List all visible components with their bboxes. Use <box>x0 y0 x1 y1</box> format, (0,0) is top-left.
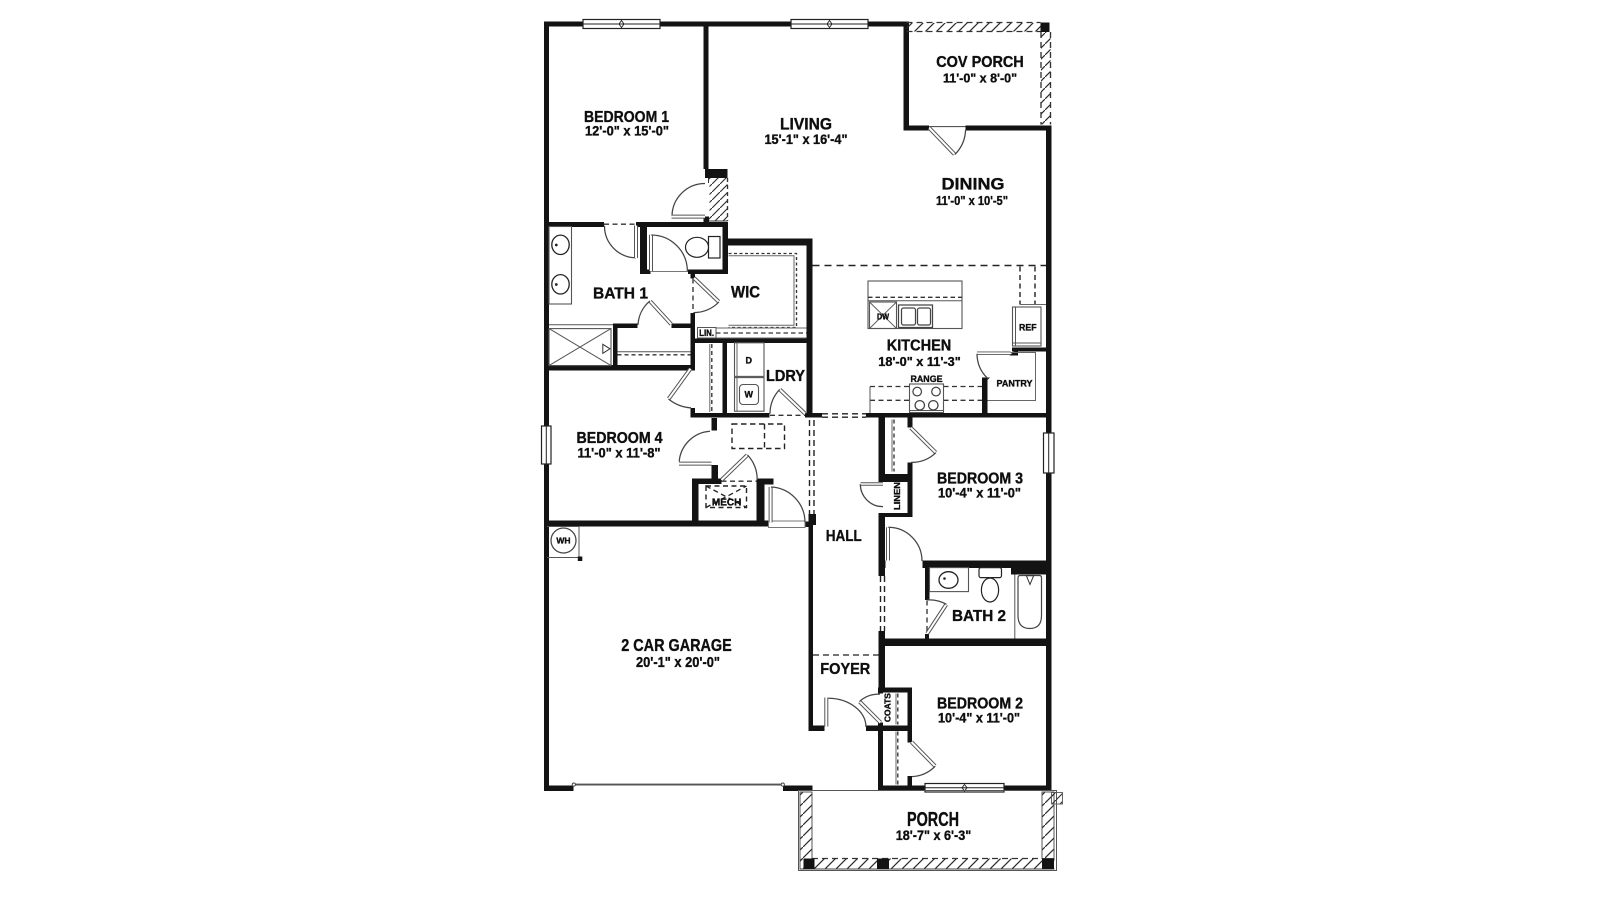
svg-text:BEDROOM 4: BEDROOM 4 <box>577 430 663 447</box>
svg-text:REF: REF <box>1019 323 1037 334</box>
svg-text:PANTRY: PANTRY <box>997 378 1034 389</box>
svg-text:D: D <box>746 355 753 365</box>
svg-text:10'-4" x 11'-0": 10'-4" x 11'-0" <box>938 485 1021 500</box>
svg-text:11'-0" x 10'-5": 11'-0" x 10'-5" <box>936 193 1008 208</box>
svg-text:LINEN: LINEN <box>892 482 902 510</box>
svg-text:LIN.: LIN. <box>699 328 714 338</box>
svg-text:HALL: HALL <box>826 528 862 545</box>
svg-text:WIC: WIC <box>731 284 760 302</box>
svg-text:BATH 1: BATH 1 <box>593 286 648 303</box>
svg-text:20'-1" x 20'-0": 20'-1" x 20'-0" <box>636 655 720 671</box>
svg-text:W: W <box>745 390 754 400</box>
svg-text:FOYER: FOYER <box>820 661 870 678</box>
svg-text:WH: WH <box>556 536 570 546</box>
svg-text:LIVING: LIVING <box>780 114 832 133</box>
svg-text:BATH 2: BATH 2 <box>952 608 1006 625</box>
svg-text:18'-0" x 11'-3": 18'-0" x 11'-3" <box>878 354 961 369</box>
svg-text:11'-0" x 11'-8": 11'-0" x 11'-8" <box>578 446 661 461</box>
svg-text:18'-7" x 6'-3": 18'-7" x 6'-3" <box>896 828 972 843</box>
svg-text:11'-0" x 8'-0": 11'-0" x 8'-0" <box>943 70 1017 85</box>
svg-text:MECH: MECH <box>712 497 742 509</box>
svg-text:12'-0" x 15'-0": 12'-0" x 15'-0" <box>585 124 669 139</box>
svg-text:DW: DW <box>877 312 889 321</box>
svg-text:COATS: COATS <box>883 693 893 722</box>
svg-text:KITCHEN: KITCHEN <box>887 338 952 355</box>
svg-text:15'-1" x 16'-4": 15'-1" x 16'-4" <box>765 132 848 147</box>
svg-text:DINING: DINING <box>942 176 1005 194</box>
svg-text:LDRY: LDRY <box>766 368 805 385</box>
svg-text:2 CAR GARAGE: 2 CAR GARAGE <box>621 635 732 655</box>
svg-text:RANGE: RANGE <box>911 374 943 385</box>
svg-text:COV PORCH: COV PORCH <box>936 54 1024 71</box>
svg-text:10'-4" x 11'-0": 10'-4" x 11'-0" <box>938 711 1020 726</box>
